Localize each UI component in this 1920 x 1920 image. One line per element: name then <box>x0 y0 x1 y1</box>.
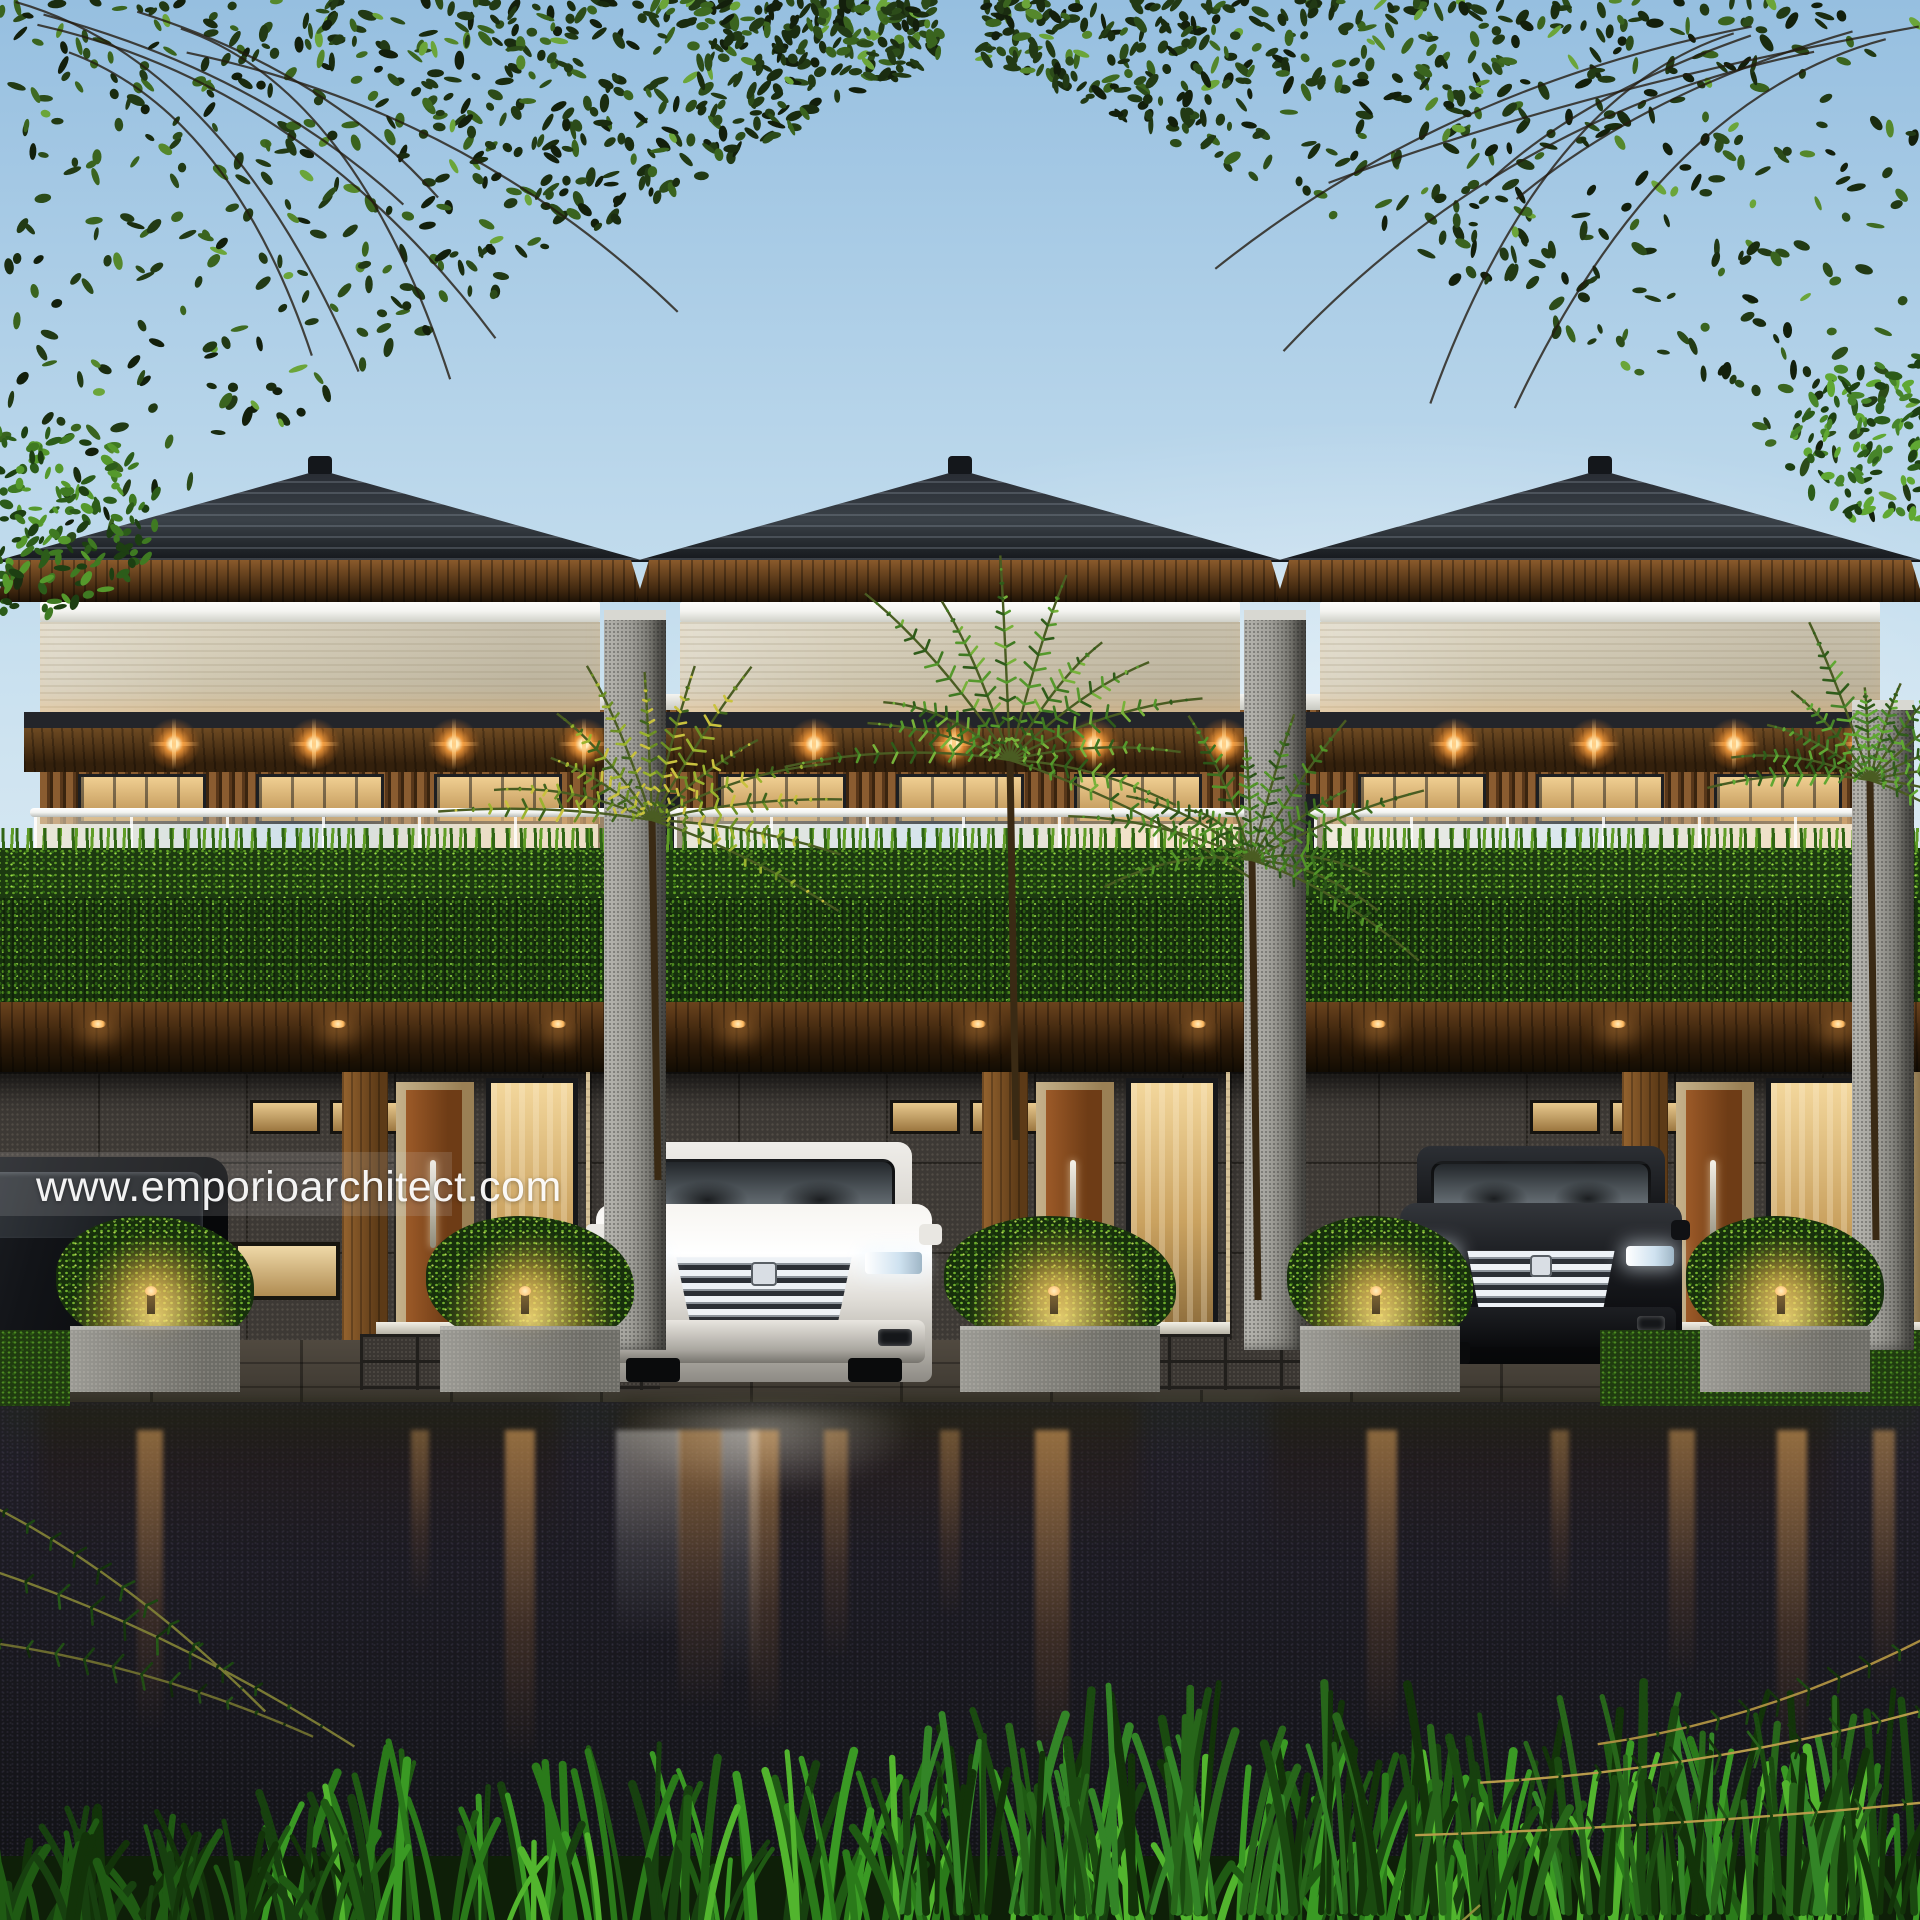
planter-stone-box <box>1300 1326 1460 1392</box>
hanging-vines <box>580 898 1300 1002</box>
carport-downlight <box>80 1018 116 1032</box>
light-reflection-streak <box>1035 1430 1069 1770</box>
hip-roof <box>0 470 648 562</box>
garden-light <box>147 1292 155 1314</box>
roof-finial <box>1588 456 1612 474</box>
roof-finial <box>308 456 332 474</box>
soffit-downlight <box>426 716 482 772</box>
roof-eave-fascia <box>1276 560 1920 602</box>
light-reflection-streak <box>1669 1430 1695 1680</box>
light-reflection-streak <box>1873 1430 1895 1690</box>
planter-stone-box <box>70 1326 240 1392</box>
white-trim-band <box>40 602 600 622</box>
white-trim-band <box>680 602 1240 622</box>
light-reflection-streak <box>1777 1430 1807 1760</box>
carport-downlight <box>540 1018 576 1032</box>
planter-stone-box <box>960 1326 1160 1392</box>
garden-planter <box>960 1196 1160 1392</box>
stone-pillar <box>1244 610 1306 1350</box>
hedge-grass-tips <box>580 828 1300 850</box>
soffit-downlight <box>1566 716 1622 772</box>
railing-handrail <box>30 808 610 817</box>
light-reflection-streak <box>411 1430 429 1600</box>
carport-ceiling <box>0 1002 660 1072</box>
carport-downlight <box>1820 1018 1856 1032</box>
wood-soffit <box>1304 728 1896 772</box>
white-reflection-streak <box>721 1430 759 1680</box>
light-reflection-streak <box>940 1430 960 1620</box>
lit-wall-niche <box>890 1100 960 1134</box>
soffit-downlight <box>926 716 982 772</box>
garden-light <box>1050 1292 1058 1314</box>
soffit-downlight <box>286 716 342 772</box>
white-trim-band <box>1320 602 1880 622</box>
hip-roof <box>1272 470 1920 562</box>
garden-light <box>1777 1292 1785 1314</box>
carport-downlight <box>1360 1018 1396 1032</box>
watermark-text: www.emporioarchitect.com <box>36 1163 562 1212</box>
carport-downlight <box>320 1018 356 1032</box>
carport-downlight <box>1600 1018 1636 1032</box>
hip-roof <box>632 470 1288 562</box>
architectural-render: www.emporioarchitect.com <box>0 0 1920 1920</box>
garden-light <box>1372 1292 1380 1314</box>
light-reflection-streak <box>137 1430 163 1730</box>
light-reflection-streak <box>1367 1430 1397 1740</box>
hanging-vines <box>1220 898 1920 1002</box>
soffit-downlight <box>786 716 842 772</box>
roof-finial <box>948 456 972 474</box>
travertine-band <box>40 622 600 712</box>
carport-downlight <box>720 1018 756 1032</box>
railing-handrail <box>1310 808 1890 817</box>
lit-wall-niche <box>1530 1100 1600 1134</box>
front-lawn-strip <box>0 1330 70 1406</box>
hedge-grass-tips <box>0 828 660 850</box>
travertine-band <box>680 622 1240 712</box>
travertine-band <box>1320 622 1880 712</box>
garden-planter <box>440 1196 620 1392</box>
light-reflection-streak <box>505 1430 535 1760</box>
soffit-downlight <box>1066 716 1122 772</box>
soffit-downlight <box>1706 716 1762 772</box>
white-reflection-streak <box>616 1430 680 1640</box>
roof-eave-fascia <box>0 560 644 602</box>
wood-soffit <box>24 728 616 772</box>
soffit-downlight <box>1426 716 1482 772</box>
carport-downlight <box>960 1018 996 1032</box>
roof-eave-fascia <box>636 560 1284 602</box>
light-reflection-streak <box>678 1430 722 1710</box>
carport-ceiling <box>580 1002 1300 1072</box>
garden-planter <box>1300 1196 1460 1392</box>
garden-light <box>521 1292 529 1314</box>
hanging-vines <box>0 898 660 1002</box>
soffit-downlight <box>146 716 202 772</box>
carport-downlight <box>1180 1018 1216 1032</box>
garden-planter <box>70 1196 240 1392</box>
planter-stone-box <box>440 1326 620 1392</box>
light-reflection-streak <box>824 1430 848 1660</box>
lit-wall-niche <box>250 1100 320 1134</box>
railing-handrail <box>670 808 1250 817</box>
carport-ceiling <box>1220 1002 1920 1072</box>
hedge-grass-tips <box>1220 828 1920 850</box>
wood-soffit <box>664 728 1256 772</box>
planter-stone-box <box>1700 1326 1870 1392</box>
garden-planter <box>1700 1196 1870 1392</box>
light-reflection-streak <box>1551 1430 1569 1610</box>
